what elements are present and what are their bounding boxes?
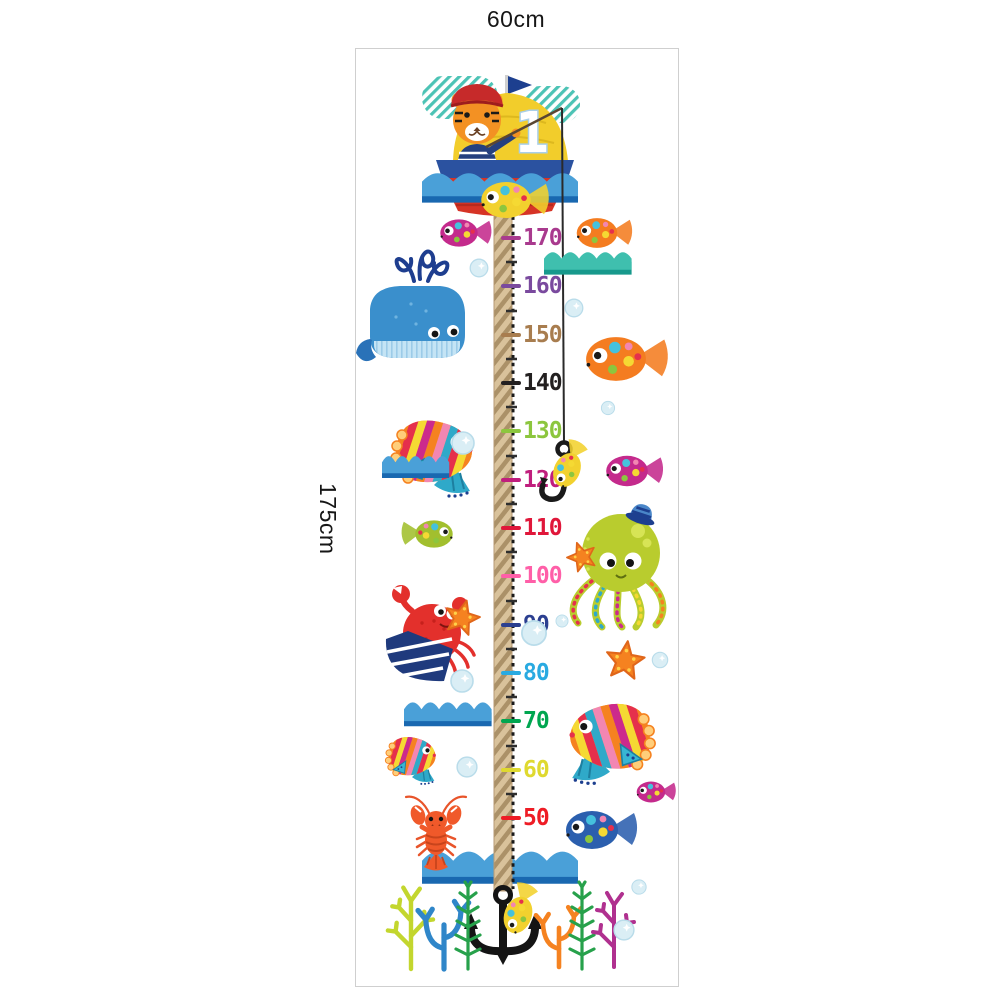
bubble-icon: [470, 259, 488, 277]
spotted-fish-icon: [577, 218, 632, 248]
bubble-icon: [614, 920, 634, 940]
growth-ruler: 170 160 150 140 130 120 110 100: [494, 197, 562, 891]
tropical-fish-icon: [380, 389, 496, 515]
puffer-fish-icon: [402, 520, 453, 547]
spotted-fish-icon: [440, 219, 491, 246]
height-dimension-label: 175cm: [314, 460, 341, 578]
anchor-ring: [496, 888, 511, 903]
bubble-icon: [652, 652, 667, 667]
ruler-mark-label: 50: [523, 805, 549, 831]
ruler-mark-label: 130: [523, 418, 562, 444]
spotted-fish-icon: [586, 337, 668, 381]
tropical-fish-icon: [378, 718, 450, 796]
bubble-icon: [451, 670, 473, 692]
ruler-mark-label: 160: [523, 273, 562, 299]
ruler-mark-label: 170: [523, 225, 562, 251]
bubble-icon: [556, 615, 568, 627]
waves-icon: [404, 702, 492, 726]
bubble-icon: [601, 401, 614, 414]
bubble-icon: [565, 299, 583, 317]
waves-icon: [382, 456, 449, 478]
ruler-mark-label: 110: [523, 515, 562, 541]
spotted-fish-icon: [606, 456, 663, 486]
ruler-mark-label: 100: [523, 563, 562, 589]
bubble-icon: [457, 757, 477, 777]
ruler-mark-label: 70: [523, 708, 549, 734]
whale-spout: [397, 252, 448, 281]
octopus-icon: [563, 500, 663, 627]
starfish-icon: [604, 639, 646, 680]
width-dimension-label: 60cm: [355, 6, 677, 33]
bubble-icon: [522, 621, 546, 645]
ruler-mark-label: 60: [523, 757, 549, 783]
bubble-icon: [452, 432, 474, 454]
bubble-icon: [632, 880, 646, 894]
spotted-fish-icon: [566, 811, 637, 849]
waves-icon: [544, 252, 632, 274]
ruler-rope: [494, 197, 512, 891]
spotted-fish-icon: [637, 782, 676, 803]
sailboat-with-tiger-sailor: 1: [422, 75, 580, 218]
ruler-mark-label: 150: [523, 322, 562, 348]
sticker-panel: 170 160 150 140 130 120 110 100: [355, 48, 679, 987]
whale-icon: [356, 252, 465, 362]
ruler-mark-label: 140: [523, 370, 562, 396]
crab-icon: [386, 585, 483, 681]
ruler-mark-label: 80: [523, 660, 549, 686]
